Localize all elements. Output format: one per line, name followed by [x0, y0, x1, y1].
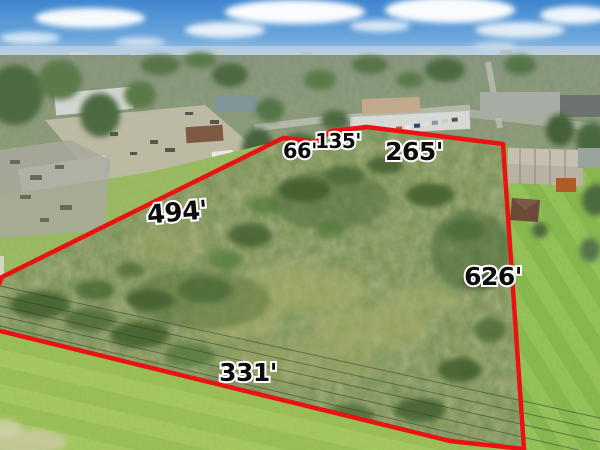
- shipping-container: [556, 178, 576, 192]
- dimension-label-north-left: 66': [283, 139, 317, 163]
- aerial-parcel-photo: 494' 66' 135' 265' 626' 331': [0, 0, 600, 450]
- dimension-label-north-right: 265': [385, 137, 443, 166]
- scrap-yard: [0, 140, 110, 238]
- dimension-label-west: 494': [146, 195, 209, 230]
- dimension-label-north-middle: 135': [315, 129, 361, 153]
- gazebo-shed: [510, 198, 540, 222]
- dimension-label-east: 626': [464, 262, 522, 291]
- dimension-label-south: 331': [219, 358, 277, 387]
- photo-canvas: 494' 66' 135' 265' 626' 331': [0, 0, 600, 450]
- small-outbuilding: [578, 148, 600, 168]
- sky: [0, 0, 600, 64]
